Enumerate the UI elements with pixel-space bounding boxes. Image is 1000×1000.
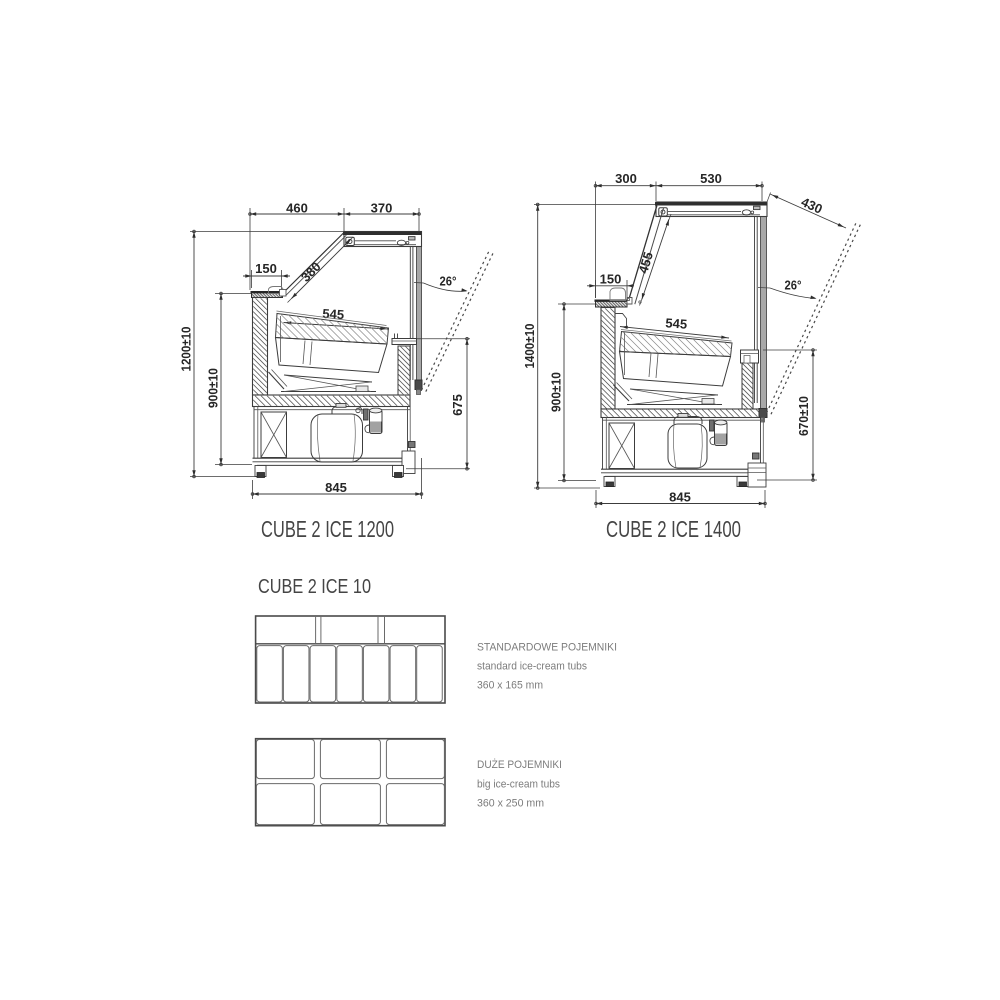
svg-text:380: 380 xyxy=(298,259,324,285)
svg-text:150: 150 xyxy=(600,272,622,287)
svg-text:STANDARDOWE POJEMNIKI: STANDARDOWE POJEMNIKI xyxy=(477,642,617,654)
svg-text:845: 845 xyxy=(669,490,691,505)
svg-text:370: 370 xyxy=(371,201,393,216)
svg-text:1400±10: 1400±10 xyxy=(522,324,537,369)
svg-text:845: 845 xyxy=(325,480,347,495)
svg-text:545: 545 xyxy=(665,315,688,331)
svg-text:CUBE 2 ICE 1200: CUBE 2 ICE 1200 xyxy=(261,516,394,542)
svg-text:900±10: 900±10 xyxy=(206,368,221,408)
svg-text:CUBE 2 ICE 1400: CUBE 2 ICE 1400 xyxy=(606,516,741,542)
svg-text:530: 530 xyxy=(700,171,722,186)
svg-text:360 x 250 mm: 360 x 250 mm xyxy=(477,798,544,810)
svg-text:675: 675 xyxy=(450,394,465,416)
svg-text:1200±10: 1200±10 xyxy=(179,327,194,372)
svg-text:26°: 26° xyxy=(785,278,802,293)
svg-text:460: 460 xyxy=(286,201,308,216)
svg-text:150: 150 xyxy=(255,261,277,276)
svg-text:430: 430 xyxy=(799,194,825,217)
svg-text:900±10: 900±10 xyxy=(549,372,564,412)
svg-text:670±10: 670±10 xyxy=(796,396,811,436)
svg-text:DUŻE POJEMNIKI: DUŻE POJEMNIKI xyxy=(477,758,562,771)
svg-text:big ice-cream tubs: big ice-cream tubs xyxy=(477,779,560,791)
svg-text:455: 455 xyxy=(635,250,656,275)
svg-text:standard ice-cream tubs: standard ice-cream tubs xyxy=(477,661,587,673)
svg-text:300: 300 xyxy=(615,171,637,186)
svg-text:26°: 26° xyxy=(440,274,457,289)
svg-text:CUBE 2 ICE 10: CUBE 2 ICE 10 xyxy=(258,576,371,598)
svg-text:360 x 165 mm: 360 x 165 mm xyxy=(477,680,543,692)
